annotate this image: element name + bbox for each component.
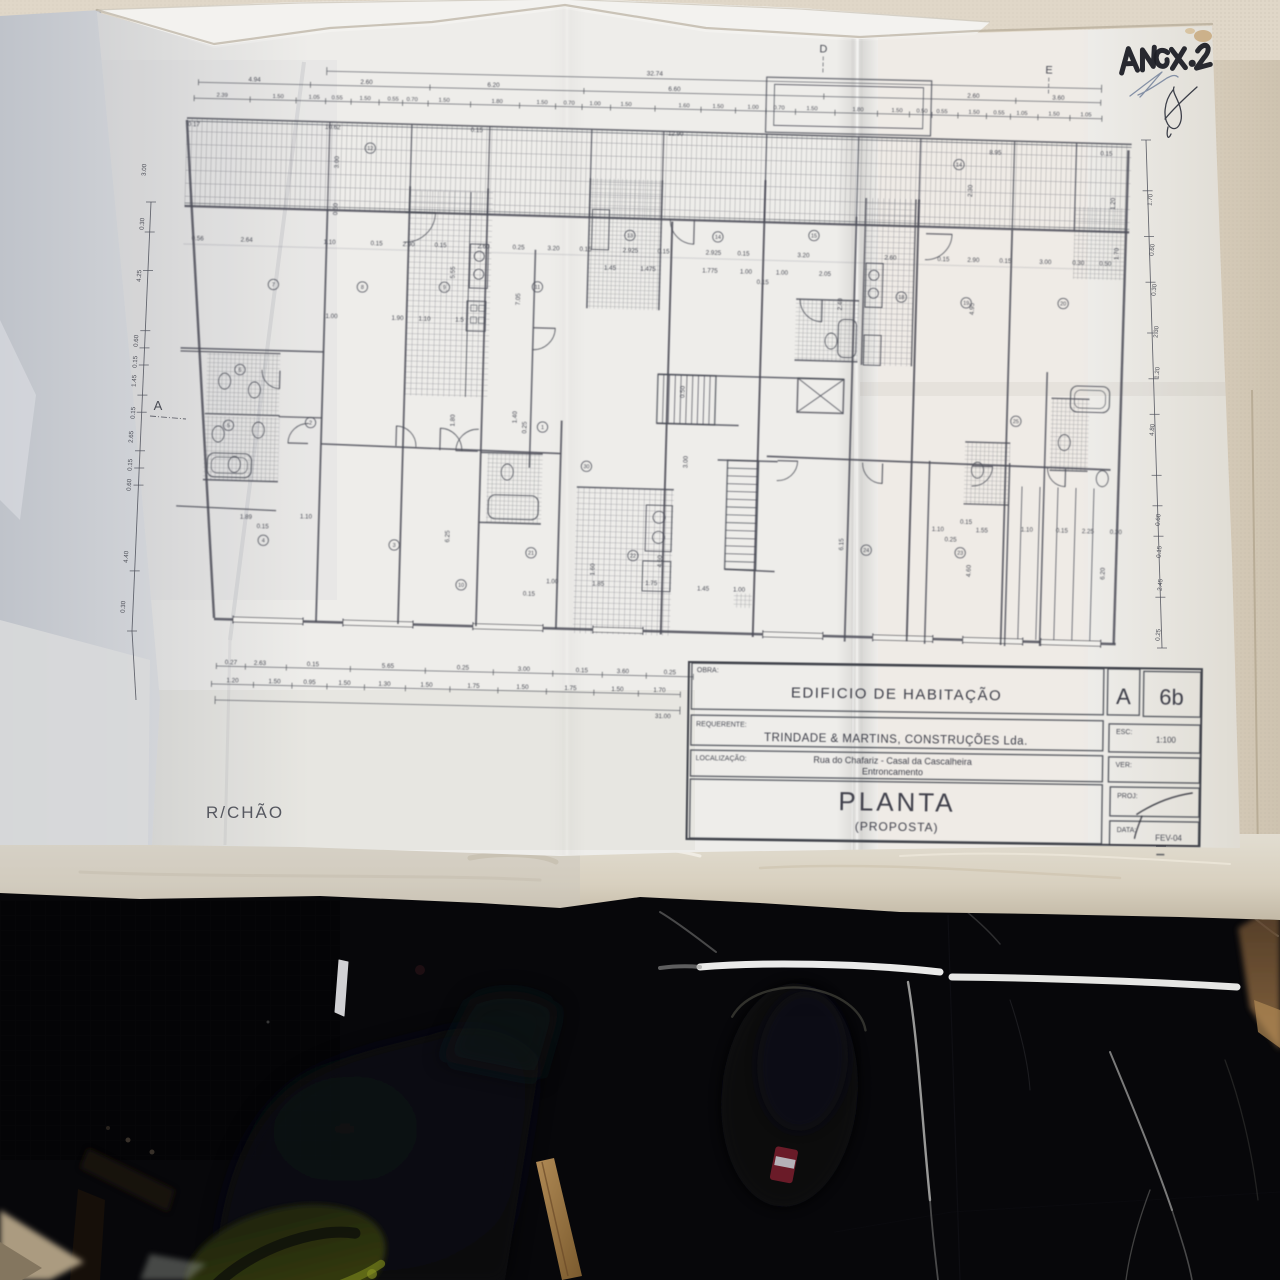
svg-text:6.15: 6.15 [838, 538, 845, 551]
svg-text:1.00: 1.00 [776, 270, 789, 277]
svg-text:11: 11 [534, 285, 540, 291]
svg-text:0.15: 0.15 [256, 523, 269, 530]
svg-text:6.25: 6.25 [444, 530, 451, 543]
svg-text:1.20: 1.20 [226, 677, 239, 684]
svg-text:2.60: 2.60 [360, 79, 373, 86]
svg-text:15: 15 [811, 234, 817, 240]
svg-text:1.20: 1.20 [1153, 366, 1161, 379]
svg-text:12: 12 [367, 146, 373, 152]
svg-text:0.15: 0.15 [132, 355, 140, 368]
svg-text:1.80: 1.80 [491, 99, 502, 105]
svg-text:2.40: 2.40 [837, 298, 844, 311]
svg-text:1.60: 1.60 [589, 563, 596, 576]
svg-text:8.95: 8.95 [989, 149, 1002, 156]
svg-text:1.70: 1.70 [1146, 193, 1154, 206]
svg-text:REQUERENTE:: REQUERENTE: [696, 721, 747, 729]
svg-text:0.25: 0.25 [944, 536, 957, 543]
svg-text:0.15: 0.15 [737, 250, 750, 257]
svg-text:1.50: 1.50 [516, 684, 529, 691]
svg-text:1.50: 1.50 [968, 110, 979, 116]
svg-text:1.60: 1.60 [678, 103, 689, 109]
svg-text:1.50: 1.50 [611, 686, 624, 693]
svg-text:2.05: 2.05 [819, 271, 832, 278]
svg-text:(PROPOSTA): (PROPOSTA) [855, 819, 939, 834]
svg-text:0.25: 0.25 [512, 244, 525, 251]
svg-text:1.20: 1.20 [1110, 197, 1117, 210]
svg-text:0.15: 0.15 [370, 240, 383, 247]
svg-text:VER:: VER: [1116, 762, 1132, 769]
svg-text:4.94: 4.94 [248, 76, 261, 83]
svg-text:6.60: 6.60 [668, 86, 681, 93]
svg-text:1.05: 1.05 [308, 95, 319, 101]
svg-text:2.60: 2.60 [477, 243, 490, 250]
svg-text:2.39: 2.39 [216, 93, 227, 99]
svg-text:0.55: 0.55 [936, 109, 947, 115]
svg-text:1.50: 1.50 [338, 680, 351, 687]
svg-text:0.25: 0.25 [664, 669, 677, 676]
svg-text:4.95: 4.95 [969, 302, 976, 315]
svg-text:3.20: 3.20 [797, 252, 810, 259]
svg-text:0.15: 0.15 [960, 519, 973, 526]
svg-text:6: 6 [238, 368, 241, 374]
svg-text:ESC:: ESC: [1116, 729, 1132, 736]
svg-text:0.27: 0.27 [225, 659, 238, 666]
svg-text:1.00: 1.00 [733, 586, 746, 593]
svg-text:3.00: 3.00 [334, 156, 341, 169]
svg-text:A: A [1116, 684, 1131, 709]
svg-text:0.95: 0.95 [303, 679, 316, 686]
svg-text:0.55: 0.55 [387, 97, 398, 103]
svg-text:0.15: 0.15 [434, 242, 447, 249]
svg-text:0.15: 0.15 [1056, 527, 1069, 534]
svg-text:FEV-04: FEV-04 [1155, 834, 1182, 843]
svg-text:1.80: 1.80 [449, 414, 456, 427]
svg-text:1.70: 1.70 [1113, 247, 1120, 260]
svg-text:6.20: 6.20 [1099, 567, 1106, 580]
svg-text:0.15: 0.15 [937, 256, 950, 263]
svg-text:1.50: 1.50 [359, 96, 370, 102]
svg-text:0.15: 0.15 [579, 246, 592, 253]
svg-text:1.50: 1.50 [806, 106, 817, 112]
svg-text:0.15: 0.15 [130, 406, 138, 419]
svg-text:2.30: 2.30 [967, 184, 974, 197]
svg-text:4.25: 4.25 [136, 269, 144, 282]
svg-text:1.775: 1.775 [702, 267, 718, 274]
svg-text:0.30: 0.30 [1150, 283, 1158, 296]
svg-text:4.60: 4.60 [657, 555, 664, 568]
svg-text:OBRA:: OBRA: [697, 667, 719, 674]
svg-text:PROJ:: PROJ: [1117, 793, 1138, 800]
svg-text:1.45: 1.45 [604, 265, 617, 272]
svg-text:1.00: 1.00 [325, 313, 338, 320]
svg-text:0.55: 0.55 [993, 110, 1004, 116]
svg-text:1.50: 1.50 [272, 94, 283, 100]
svg-text:E: E [1045, 64, 1053, 76]
svg-text:0.50: 0.50 [332, 203, 339, 216]
svg-text:1.50: 1.50 [891, 108, 902, 114]
svg-text:0.25: 0.25 [457, 664, 470, 671]
svg-text:10: 10 [458, 583, 464, 589]
svg-text:1.80: 1.80 [852, 107, 863, 113]
svg-text:3.00: 3.00 [141, 163, 149, 176]
svg-text:5.55: 5.55 [450, 266, 457, 279]
svg-text:24: 24 [863, 548, 869, 554]
svg-text:0.70: 0.70 [406, 97, 417, 103]
svg-text:PLANTA: PLANTA [838, 786, 956, 818]
svg-text:4.40: 4.40 [123, 550, 131, 563]
svg-text:3.00: 3.00 [518, 666, 531, 673]
svg-text:6.20: 6.20 [487, 82, 500, 89]
svg-text:1.50: 1.50 [620, 102, 631, 108]
svg-text:1.10: 1.10 [323, 239, 336, 246]
svg-text:1.50: 1.50 [268, 678, 281, 685]
svg-text:0.15: 0.15 [1155, 545, 1163, 558]
svg-text:0.70: 0.70 [773, 105, 784, 111]
svg-text:22: 22 [630, 554, 636, 560]
svg-text:1.75: 1.75 [467, 683, 480, 690]
svg-text:2.25: 2.25 [1082, 528, 1095, 535]
svg-text:1:100: 1:100 [1156, 736, 1177, 745]
svg-text:0.15: 0.15 [657, 248, 670, 255]
svg-text:2.63: 2.63 [254, 660, 267, 667]
svg-text:4: 4 [262, 538, 265, 544]
svg-text:2.60: 2.60 [884, 255, 897, 262]
svg-text:2.90: 2.90 [967, 257, 980, 264]
svg-text:1.10: 1.10 [1021, 526, 1034, 533]
svg-text:1.05: 1.05 [1016, 111, 1027, 117]
svg-text:1.89: 1.89 [240, 514, 253, 521]
svg-text:1.50: 1.50 [712, 104, 723, 110]
svg-text:0.15: 0.15 [1100, 151, 1113, 158]
svg-text:1.85: 1.85 [592, 580, 605, 587]
svg-text:1.00: 1.00 [740, 268, 753, 275]
svg-text:23: 23 [957, 551, 963, 557]
svg-text:20: 20 [1060, 302, 1066, 308]
svg-text:32.74: 32.74 [647, 70, 664, 77]
svg-text:2.925: 2.925 [623, 247, 639, 254]
svg-text:0.50: 0.50 [679, 385, 686, 398]
svg-text:4.80: 4.80 [1148, 423, 1156, 436]
svg-text:31.00: 31.00 [655, 713, 671, 720]
svg-text:0.60: 0.60 [1148, 243, 1156, 256]
svg-text:0.15: 0.15 [307, 661, 320, 668]
svg-text:1.00: 1.00 [546, 578, 559, 585]
svg-text:1.5: 1.5 [455, 317, 464, 324]
svg-text:2: 2 [309, 421, 312, 427]
svg-text:4.60: 4.60 [965, 564, 972, 577]
svg-text:0.25: 0.25 [1154, 628, 1162, 641]
svg-text:21: 21 [528, 551, 534, 557]
svg-text:0.15: 0.15 [471, 127, 484, 134]
svg-text:1.55: 1.55 [976, 527, 989, 534]
svg-text:1.45: 1.45 [697, 585, 710, 592]
svg-text:1.75: 1.75 [645, 580, 658, 587]
svg-text:1.30: 1.30 [378, 681, 391, 688]
svg-text:5.65: 5.65 [382, 663, 395, 670]
svg-text:3: 3 [393, 543, 396, 549]
svg-text:25: 25 [1013, 419, 1019, 425]
svg-text:9: 9 [443, 285, 446, 291]
svg-text:8: 8 [361, 285, 364, 291]
svg-text:1.50: 1.50 [1048, 112, 1059, 118]
svg-text:A: A [154, 398, 163, 413]
svg-text:0.60: 0.60 [1154, 513, 1162, 526]
svg-text:12.90: 12.90 [668, 130, 684, 137]
svg-text:0.60: 0.60 [133, 334, 141, 347]
svg-text:0.15: 0.15 [523, 591, 536, 598]
svg-text:0.30: 0.30 [1072, 260, 1085, 267]
svg-text:1.00: 1.00 [747, 105, 758, 111]
svg-text:5: 5 [227, 423, 230, 429]
svg-text:0.56: 0.56 [192, 235, 205, 242]
svg-text:D: D [819, 43, 827, 55]
svg-text:1.45: 1.45 [131, 374, 139, 387]
svg-text:R/CHÃO: R/CHÃO [206, 803, 284, 822]
svg-text:1.05: 1.05 [1080, 112, 1091, 118]
svg-text:1.10: 1.10 [932, 526, 945, 533]
svg-text:1.50: 1.50 [536, 100, 547, 106]
svg-text:3.00: 3.00 [682, 455, 689, 468]
svg-text:10.62: 10.62 [325, 124, 341, 131]
svg-text:1.475: 1.475 [640, 266, 656, 273]
svg-text:1.40: 1.40 [512, 411, 519, 424]
svg-text:DATA:: DATA: [1117, 827, 1137, 834]
svg-text:0.15: 0.15 [999, 258, 1012, 265]
svg-text:0.17: 0.17 [188, 121, 201, 128]
svg-text:0.30: 0.30 [139, 217, 147, 230]
svg-text:1.90: 1.90 [391, 315, 404, 322]
svg-text:1.75: 1.75 [564, 685, 577, 692]
svg-text:0.55: 0.55 [331, 95, 342, 101]
svg-text:EDIFICIO DE HABITAÇÃO: EDIFICIO DE HABITAÇÃO [791, 684, 1002, 704]
svg-text:1.10: 1.10 [300, 513, 313, 520]
svg-text:7.05: 7.05 [515, 293, 522, 306]
svg-text:0.30: 0.30 [120, 600, 128, 613]
svg-text:2.30: 2.30 [1152, 325, 1160, 338]
svg-text:3.60: 3.60 [1052, 95, 1065, 102]
svg-text:0.15: 0.15 [757, 279, 770, 286]
svg-text:18: 18 [898, 295, 904, 301]
svg-text:2.90: 2.90 [402, 241, 415, 248]
svg-text:2.45: 2.45 [1156, 578, 1164, 591]
svg-text:7: 7 [272, 283, 275, 289]
svg-text:1.50: 1.50 [420, 682, 433, 689]
svg-text:2.925: 2.925 [706, 250, 722, 257]
svg-text:3.00: 3.00 [1039, 259, 1052, 266]
svg-text:1.10: 1.10 [418, 316, 431, 323]
svg-text:30: 30 [583, 464, 589, 470]
svg-text:2.65: 2.65 [128, 430, 136, 443]
svg-text:1: 1 [541, 425, 544, 431]
svg-text:Entroncamento: Entroncamento [862, 766, 923, 777]
svg-text:3.60: 3.60 [617, 668, 630, 675]
svg-text:13: 13 [627, 234, 633, 240]
svg-text:0.30: 0.30 [1110, 529, 1123, 536]
svg-text:6b: 6b [1159, 685, 1184, 710]
svg-text:14: 14 [956, 163, 962, 169]
svg-text:1.70: 1.70 [653, 687, 666, 694]
svg-text:0.25: 0.25 [521, 421, 528, 434]
svg-text:1.50: 1.50 [438, 98, 449, 104]
svg-text:2.60: 2.60 [967, 93, 980, 100]
svg-text:0.15: 0.15 [127, 458, 135, 471]
svg-text:14: 14 [715, 235, 721, 241]
svg-text:0.70: 0.70 [563, 101, 574, 107]
svg-text:1.00: 1.00 [589, 101, 600, 107]
svg-text:0.50: 0.50 [1099, 261, 1112, 268]
svg-text:2.64: 2.64 [240, 237, 253, 244]
svg-text:0.60: 0.60 [126, 478, 134, 491]
svg-text:3.20: 3.20 [547, 245, 560, 252]
svg-text:0.50: 0.50 [916, 109, 927, 115]
svg-text:0.15: 0.15 [576, 667, 589, 674]
